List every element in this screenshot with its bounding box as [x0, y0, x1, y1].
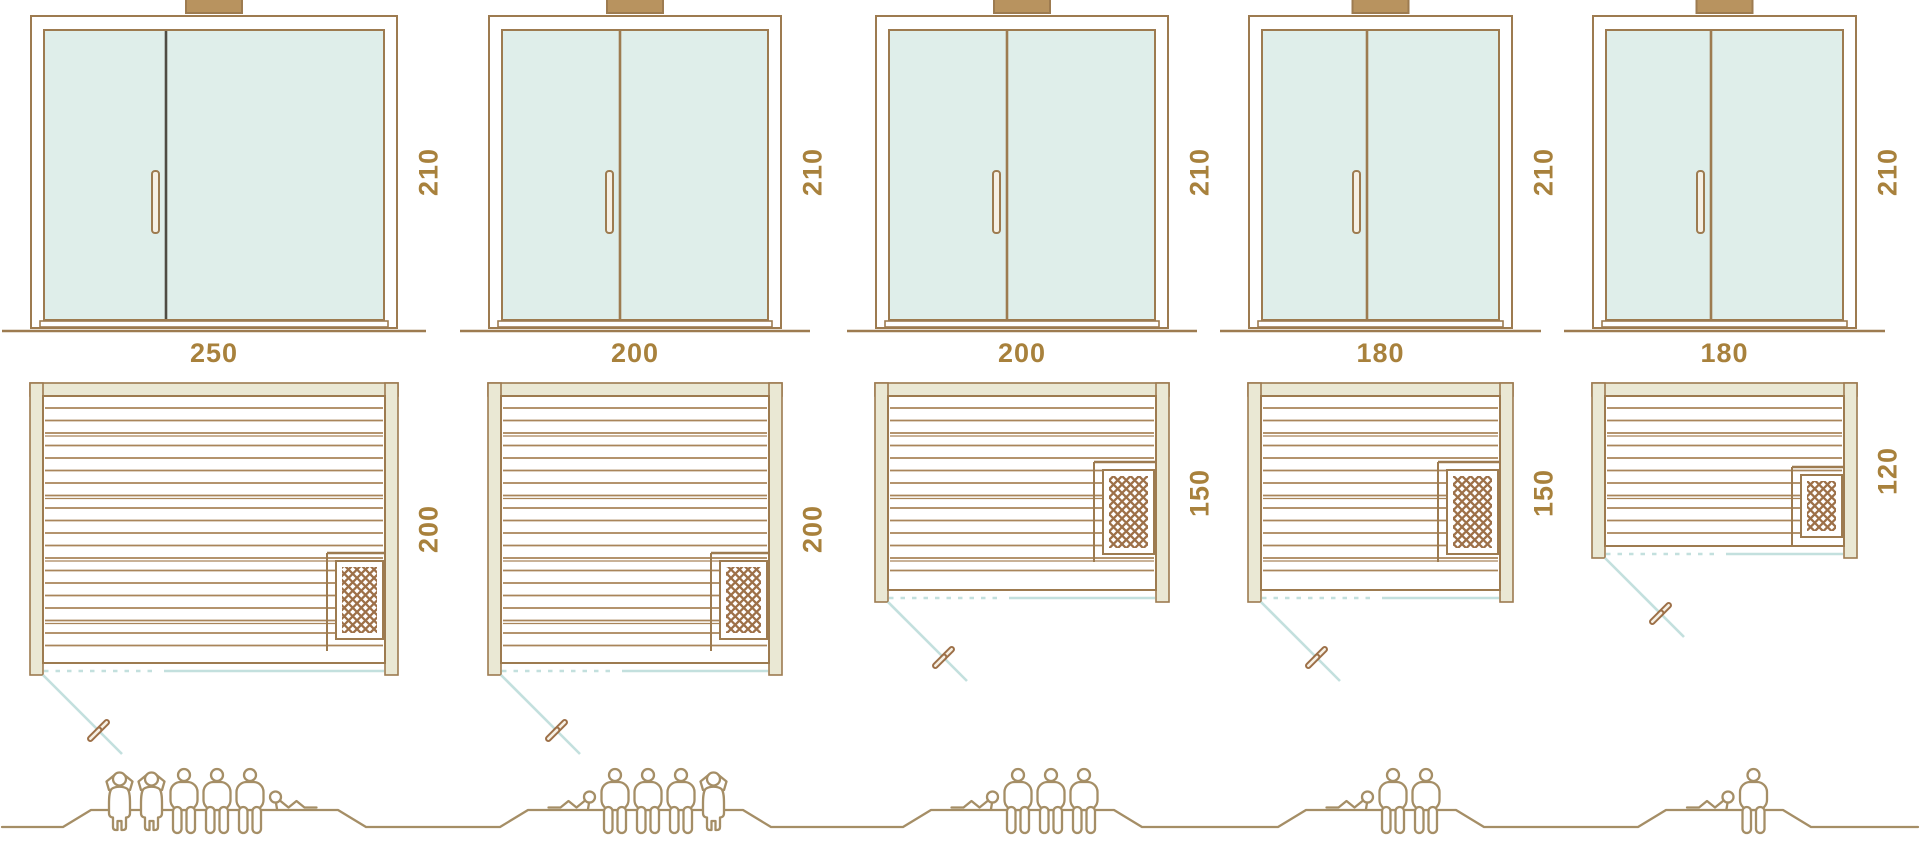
door-threshold [885, 321, 1159, 327]
person-seated-icon [1005, 769, 1032, 833]
plan-width-label: 200 [875, 338, 1169, 368]
door-top-vent [186, 0, 242, 13]
door-glass [889, 30, 1155, 320]
person-seated-icon [1740, 769, 1767, 833]
plan-frame-right [769, 383, 782, 675]
door-elevation [2, 0, 426, 331]
plan-frame-right [1844, 383, 1857, 558]
door-handle-icon [1353, 171, 1360, 233]
person-seated-icon [1071, 769, 1098, 833]
plan-frame-right [1156, 383, 1169, 602]
door-top-vent [994, 0, 1050, 13]
capacity-group [549, 769, 727, 833]
person-seated-icon [1380, 769, 1407, 833]
person-seated-icon [668, 769, 695, 833]
capacity-row [2, 769, 1918, 833]
sauna-dimension-diagram: 2502102002002102002002101501802101501802… [0, 0, 1920, 856]
plan-depth-label: 150 [1527, 423, 1561, 563]
person-reclining-icon [952, 792, 999, 810]
door-handle-icon [1697, 171, 1704, 233]
plan-frame-left [30, 383, 43, 675]
floor-plan [1592, 383, 1857, 637]
door-height-label: 210 [412, 102, 446, 242]
person-seated-icon [237, 769, 264, 833]
plan-frame-top [1248, 383, 1513, 396]
person-seated-icon [1038, 769, 1065, 833]
plan-width-label: 180 [1592, 338, 1857, 368]
plan-frame-left [488, 383, 501, 675]
door-height-label: 210 [1871, 102, 1905, 242]
door-threshold [498, 321, 772, 327]
heater-icon [1438, 462, 1500, 562]
floor-plan [1248, 383, 1513, 681]
door-threshold [1602, 321, 1847, 327]
door-swing-arc [43, 675, 122, 754]
plan-frame-top [875, 383, 1169, 396]
door-elevation [1564, 0, 1885, 331]
floor-plan [30, 383, 398, 754]
door-top-vent [1697, 0, 1753, 13]
person-seated-icon [204, 769, 231, 833]
capacity-group [1687, 769, 1767, 833]
door-height-label: 210 [1527, 102, 1561, 242]
door-threshold [1258, 321, 1503, 327]
plan-frame-right [385, 383, 398, 675]
door-height-label: 210 [796, 102, 830, 242]
plan-depth-label: 150 [1183, 423, 1217, 563]
plan-frame-left [875, 383, 888, 602]
plan-width-label: 200 [488, 338, 782, 368]
plan-width-label: 250 [30, 338, 398, 368]
person-seated-icon [1413, 769, 1440, 833]
plan-width-label: 180 [1248, 338, 1513, 368]
heater-icon [327, 553, 385, 651]
person-standing-icon [701, 773, 727, 831]
door-handle-icon [152, 171, 159, 233]
door-handle-icon [606, 171, 613, 233]
door-swing-arc [1605, 558, 1684, 637]
door-top-vent [1353, 0, 1409, 13]
plan-depth-label: 120 [1871, 401, 1905, 541]
plan-frame-left [1248, 383, 1261, 602]
door-threshold [40, 321, 388, 327]
door-glass [1606, 30, 1843, 320]
plan-frame-top [30, 383, 398, 396]
plan-frame-right [1500, 383, 1513, 602]
plan-frame-top [1592, 383, 1857, 396]
door-elevation [847, 0, 1197, 331]
door-elevation [1220, 0, 1541, 331]
person-reclining-icon [549, 792, 596, 810]
floor-plan [875, 383, 1169, 681]
plan-frame-left [1592, 383, 1605, 558]
door-elevation [460, 0, 810, 331]
floor-plan [488, 383, 782, 754]
plan-frame-top [488, 383, 782, 396]
person-reclining-icon [1687, 792, 1734, 810]
plan-depth-label: 200 [796, 459, 830, 599]
door-swing-arc [501, 675, 580, 754]
capacity-group [952, 769, 1098, 833]
person-reclining-icon [270, 792, 317, 810]
heater-icon [1094, 462, 1156, 562]
person-standing-icon [107, 773, 133, 831]
diagram-canvas [0, 0, 1920, 856]
heater-icon [711, 553, 769, 651]
door-glass [44, 30, 384, 320]
door-height-label: 210 [1183, 102, 1217, 242]
plan-depth-label: 200 [412, 459, 446, 599]
capacity-group [1327, 769, 1440, 833]
door-glass [502, 30, 768, 320]
person-standing-icon [139, 773, 165, 831]
door-glass [1262, 30, 1499, 320]
door-handle-icon [993, 171, 1000, 233]
person-seated-icon [635, 769, 662, 833]
bench-profile-line [2, 810, 1918, 827]
door-top-vent [607, 0, 663, 13]
person-reclining-icon [1327, 792, 1374, 810]
person-seated-icon [171, 769, 198, 833]
capacity-group [107, 769, 317, 833]
door-swing-arc [1261, 602, 1340, 681]
door-swing-arc [888, 602, 967, 681]
person-seated-icon [602, 769, 629, 833]
